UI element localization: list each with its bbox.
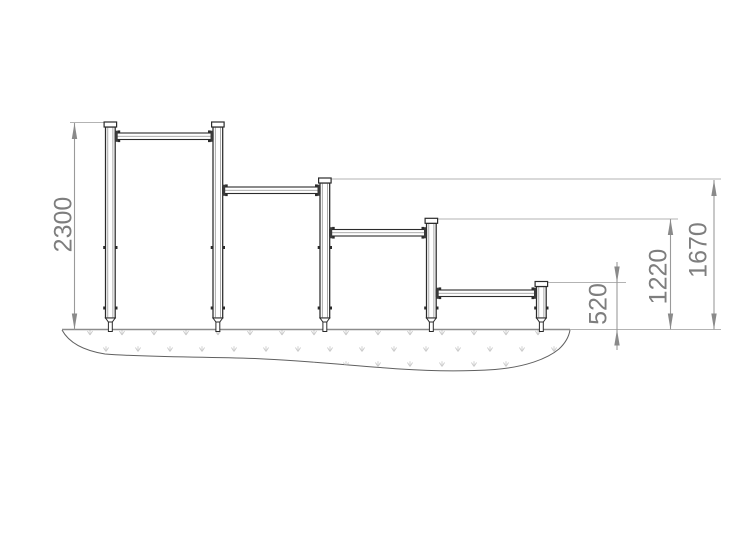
dimension-label-bar-4-height: 520 bbox=[585, 283, 613, 325]
crossbar-3-bolt-right-top bbox=[422, 227, 425, 230]
post-5-base-bolt-left bbox=[534, 307, 537, 310]
ground-texture-mark bbox=[391, 346, 396, 351]
ground-texture-mark bbox=[343, 361, 348, 366]
ground-texture-mark bbox=[455, 346, 460, 351]
crossbar-1-bolt-right-top bbox=[208, 130, 211, 133]
ground-texture-mark bbox=[247, 330, 252, 335]
dimension-1220 bbox=[438, 219, 678, 330]
crossbar-3-plate-left bbox=[330, 227, 333, 238]
dimension-label-bar-3-height: 1220 bbox=[645, 249, 673, 305]
ground bbox=[62, 330, 721, 371]
ground-texture-mark bbox=[231, 346, 236, 351]
dimension-1670-arrow-up bbox=[711, 180, 716, 196]
post-1-joint-bolt-left bbox=[103, 246, 106, 249]
ground-texture-mark bbox=[103, 346, 108, 351]
dimension-520-arrow-up bbox=[614, 330, 619, 346]
crossbar-4-bolt-left-bottom bbox=[439, 297, 442, 300]
post-3-base-bolt-right bbox=[330, 307, 333, 310]
ground-texture-mark bbox=[407, 361, 412, 366]
ground-texture-mark bbox=[535, 361, 540, 366]
post-4-base-bolt-left bbox=[424, 307, 427, 310]
ground-texture-mark bbox=[295, 346, 300, 351]
post-1 bbox=[103, 122, 117, 332]
post-5-tube bbox=[537, 287, 547, 319]
post-2 bbox=[211, 122, 225, 332]
post-4-anchor-stem bbox=[429, 322, 433, 332]
dimension-2300-arrow-up bbox=[72, 123, 77, 139]
ground-texture-mark bbox=[551, 346, 556, 351]
crossbar-2-plate-right bbox=[318, 185, 321, 196]
dimension-1670-arrow-down bbox=[711, 314, 716, 330]
crossbar-4-plate-left bbox=[436, 288, 439, 299]
ground-texture-mark bbox=[183, 361, 188, 366]
ground-texture-mark bbox=[471, 330, 476, 335]
post-5-base-bolt-right bbox=[546, 307, 549, 310]
post-1-base-bolt-left bbox=[103, 307, 106, 310]
post-3-base-taper bbox=[320, 318, 330, 322]
crossbar-2-bolt-right-top bbox=[315, 184, 318, 187]
post-3-joint-bolt-left bbox=[318, 246, 321, 249]
crossbar-2-plate-left bbox=[223, 185, 226, 196]
ground-texture-mark bbox=[119, 361, 124, 366]
post-5-base-taper bbox=[537, 318, 547, 322]
crossbar-4-bolt-left-top bbox=[439, 287, 442, 290]
crossbar-2 bbox=[223, 184, 320, 196]
dimension-1220-arrow-down bbox=[668, 314, 673, 330]
dimension-1220-arrow-up bbox=[668, 219, 673, 235]
ground-texture-mark bbox=[279, 361, 284, 366]
post-4-base-taper bbox=[427, 318, 437, 322]
ground-texture-mark bbox=[311, 330, 316, 335]
ground-texture bbox=[87, 330, 556, 367]
crossbar-1-bolt-right-bottom bbox=[208, 140, 211, 143]
ground-texture-mark bbox=[487, 346, 492, 351]
ground-texture-mark bbox=[247, 361, 252, 366]
crossbar-2-bolt-left-bottom bbox=[225, 194, 228, 197]
ground-texture-mark bbox=[215, 361, 220, 366]
post-2-joint-bolt-right bbox=[223, 246, 226, 249]
post-2-base-bolt-right bbox=[223, 307, 226, 310]
post-3 bbox=[318, 178, 332, 332]
post-4-base-bolt-right bbox=[436, 307, 439, 310]
post-1-base-bolt-right bbox=[115, 307, 118, 310]
post-3-anchor-stem bbox=[323, 322, 327, 332]
ground-texture-mark bbox=[407, 330, 412, 335]
dimension-label-bar-1-height: 2300 bbox=[50, 197, 78, 253]
ground-texture-mark bbox=[439, 361, 444, 366]
post-3-cap bbox=[319, 178, 332, 183]
ground-texture-mark bbox=[359, 346, 364, 351]
post-3-tube bbox=[320, 183, 330, 318]
crossbar-2-bolt-left-top bbox=[225, 184, 228, 187]
dimension-label-bar-2-height: 1670 bbox=[685, 222, 713, 278]
ground-texture-mark bbox=[375, 361, 380, 366]
ground-texture-mark bbox=[327, 346, 332, 351]
post-2-base-taper bbox=[213, 318, 223, 322]
post-1-tube bbox=[106, 127, 116, 318]
crossbar-3-bolt-left-top bbox=[332, 227, 335, 230]
ground-texture-mark bbox=[151, 361, 156, 366]
crossbar-2-bolt-right-bottom bbox=[315, 194, 318, 197]
post-1-cap bbox=[104, 122, 117, 127]
ground-texture-mark bbox=[135, 346, 140, 351]
ground-texture-mark bbox=[519, 346, 524, 351]
dimension-520-arrow-down bbox=[614, 267, 619, 283]
ground-texture-mark bbox=[279, 330, 284, 335]
post-2-anchor-stem bbox=[216, 322, 220, 332]
ground-texture-mark bbox=[439, 330, 444, 335]
ground-texture-mark bbox=[183, 330, 188, 335]
post-5-anchor-stem bbox=[539, 322, 543, 332]
ground-texture-mark bbox=[503, 361, 508, 366]
pullup-bars-elevation-drawing: 2300 1670 1220 520 bbox=[0, 0, 756, 535]
ground-texture-mark bbox=[151, 330, 156, 335]
post-4-cap bbox=[425, 218, 438, 223]
post-3-joint-bolt-right bbox=[330, 246, 333, 249]
post-2-base-bolt-left bbox=[211, 307, 214, 310]
post-2-cap bbox=[212, 122, 225, 127]
post-3-base-bolt-left bbox=[318, 307, 321, 310]
crossbar-3-bolt-left-bottom bbox=[332, 236, 335, 239]
dimension-2300-arrow-down bbox=[72, 314, 77, 330]
ground-texture-mark bbox=[423, 346, 428, 351]
post-2-joint-bolt-left bbox=[211, 246, 214, 249]
crossbar-1-bolt-left-top bbox=[118, 130, 121, 133]
ground-texture-mark bbox=[87, 330, 92, 335]
post-2-tube bbox=[213, 127, 223, 318]
post-1-joint-bolt-right bbox=[115, 246, 118, 249]
post-5-cap bbox=[535, 282, 548, 287]
ground-texture-mark bbox=[87, 361, 92, 366]
equipment-structure bbox=[103, 122, 548, 332]
ground-texture-mark bbox=[375, 330, 380, 335]
ground-texture-mark bbox=[119, 330, 124, 335]
drawing-canvas: 2300 1670 1220 520 bbox=[0, 0, 756, 535]
crossbar-3-plate-right bbox=[424, 227, 427, 238]
crossbar-4-bolt-right-bottom bbox=[532, 297, 535, 300]
crossbar-3 bbox=[330, 227, 427, 239]
post-1-anchor-stem bbox=[108, 322, 112, 332]
ground-texture-mark bbox=[503, 330, 508, 335]
crossbar-1-bolt-left-bottom bbox=[118, 140, 121, 143]
ground-texture-mark bbox=[167, 346, 172, 351]
crossbar-1 bbox=[115, 130, 213, 142]
ground-texture-mark bbox=[471, 361, 476, 366]
post-1-base-taper bbox=[106, 318, 116, 322]
ground-texture-mark bbox=[263, 346, 268, 351]
crossbar-1-plate-left bbox=[115, 131, 118, 142]
crossbar-3-bolt-right-bottom bbox=[422, 236, 425, 239]
crossbar-1-plate-right bbox=[211, 131, 214, 142]
post-4-tube bbox=[427, 223, 437, 318]
ground-texture-mark bbox=[343, 330, 348, 335]
crossbar-4-plate-right bbox=[534, 288, 537, 299]
crossbar-4-bolt-right-top bbox=[532, 287, 535, 290]
ground-texture-mark bbox=[199, 346, 204, 351]
crossbar-4 bbox=[436, 287, 536, 299]
